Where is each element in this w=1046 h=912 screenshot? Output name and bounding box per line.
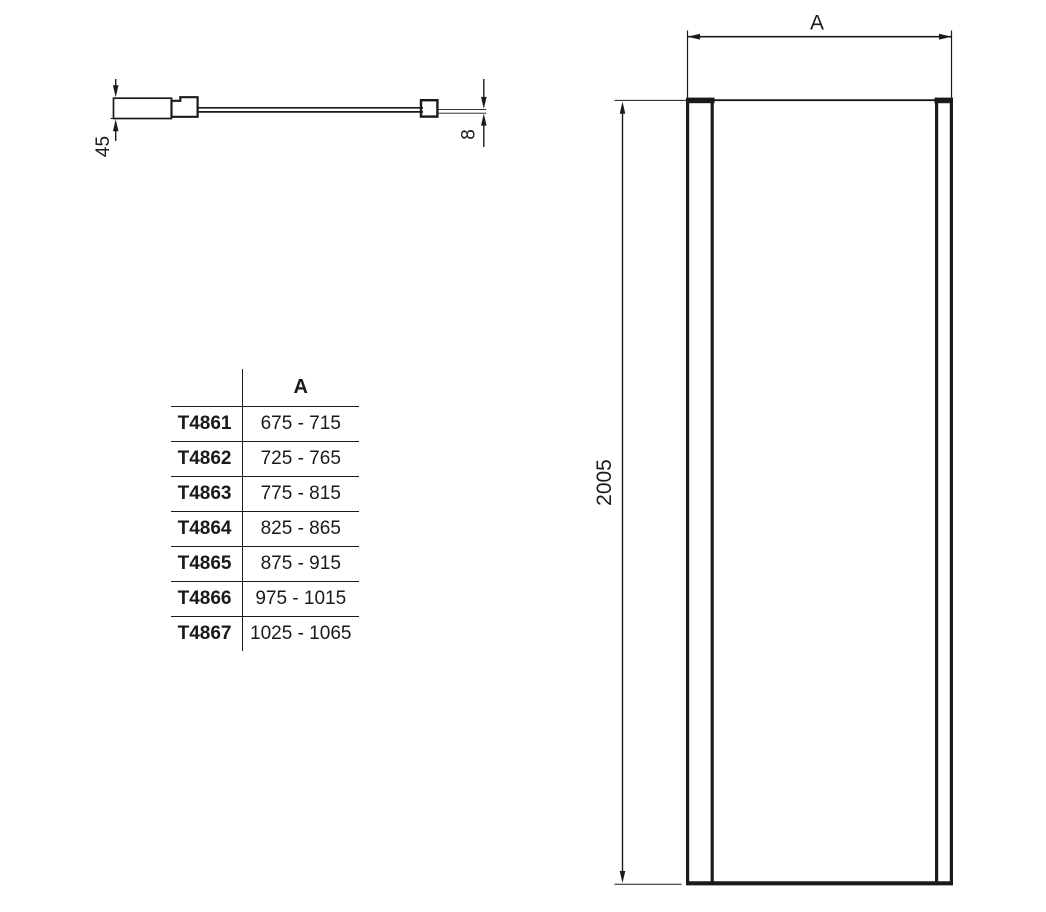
table-header-a: A <box>243 369 360 406</box>
front-dim2005-arrow-up <box>620 102 626 114</box>
product-code: T4866 <box>171 582 243 616</box>
product-code: T4864 <box>171 512 243 546</box>
table-row: T4865 875 - 915 <box>171 546 359 581</box>
table-header-row: A <box>171 369 359 406</box>
front-dim2005-arrow-down <box>620 871 626 883</box>
plan-dim8-arrow-up <box>481 114 487 126</box>
product-code: T4862 <box>171 442 243 476</box>
plan-glass-clamp <box>172 97 198 117</box>
product-code: T4861 <box>171 407 243 441</box>
front-view-drawing: A 2005 <box>585 5 1046 905</box>
table-row: T4862 725 - 765 <box>171 441 359 476</box>
size-range: 725 - 765 <box>243 442 360 476</box>
table-row: T4861 675 - 715 <box>171 406 359 441</box>
plan-end-cap <box>421 100 437 116</box>
front-dimA-label: A <box>810 12 824 35</box>
plan-dim8-label: 8 <box>459 129 480 140</box>
size-range: 975 - 1015 <box>243 582 360 616</box>
table-header-code-cell <box>171 369 243 406</box>
size-range: 675 - 715 <box>243 407 360 441</box>
technical-drawing-page: 45 8 A 2005 A <box>0 0 1046 912</box>
plan-dim45-label: 45 <box>93 136 114 157</box>
size-range: 775 - 815 <box>243 477 360 511</box>
product-code: T4863 <box>171 477 243 511</box>
plan-view-drawing: 45 8 <box>90 72 500 167</box>
plan-dim45-arrow-down <box>113 85 119 97</box>
size-range: 825 - 865 <box>243 512 360 546</box>
front-dim2005-label: 2005 <box>593 459 616 506</box>
plan-dim8-arrow-down <box>481 97 487 109</box>
front-left-profile-cap <box>686 98 715 104</box>
plan-wall-profile <box>114 98 172 118</box>
table-row: T4866 975 - 1015 <box>171 581 359 616</box>
front-dimA-arrow-right <box>939 34 952 40</box>
plan-dim45-arrow-up <box>113 119 119 131</box>
product-code: T4865 <box>171 547 243 581</box>
size-range: 875 - 915 <box>243 547 360 581</box>
table-row: T4867 1025 - 1065 <box>171 616 359 651</box>
product-code: T4867 <box>171 617 243 651</box>
table-row: T4864 825 - 865 <box>171 511 359 546</box>
table-row: T4863 775 - 815 <box>171 476 359 511</box>
front-dimA-arrow-left <box>688 34 701 40</box>
size-range: 1025 - 1065 <box>243 617 360 651</box>
size-table: A T4861 675 - 715 T4862 725 - 765 T4863 … <box>171 369 359 651</box>
